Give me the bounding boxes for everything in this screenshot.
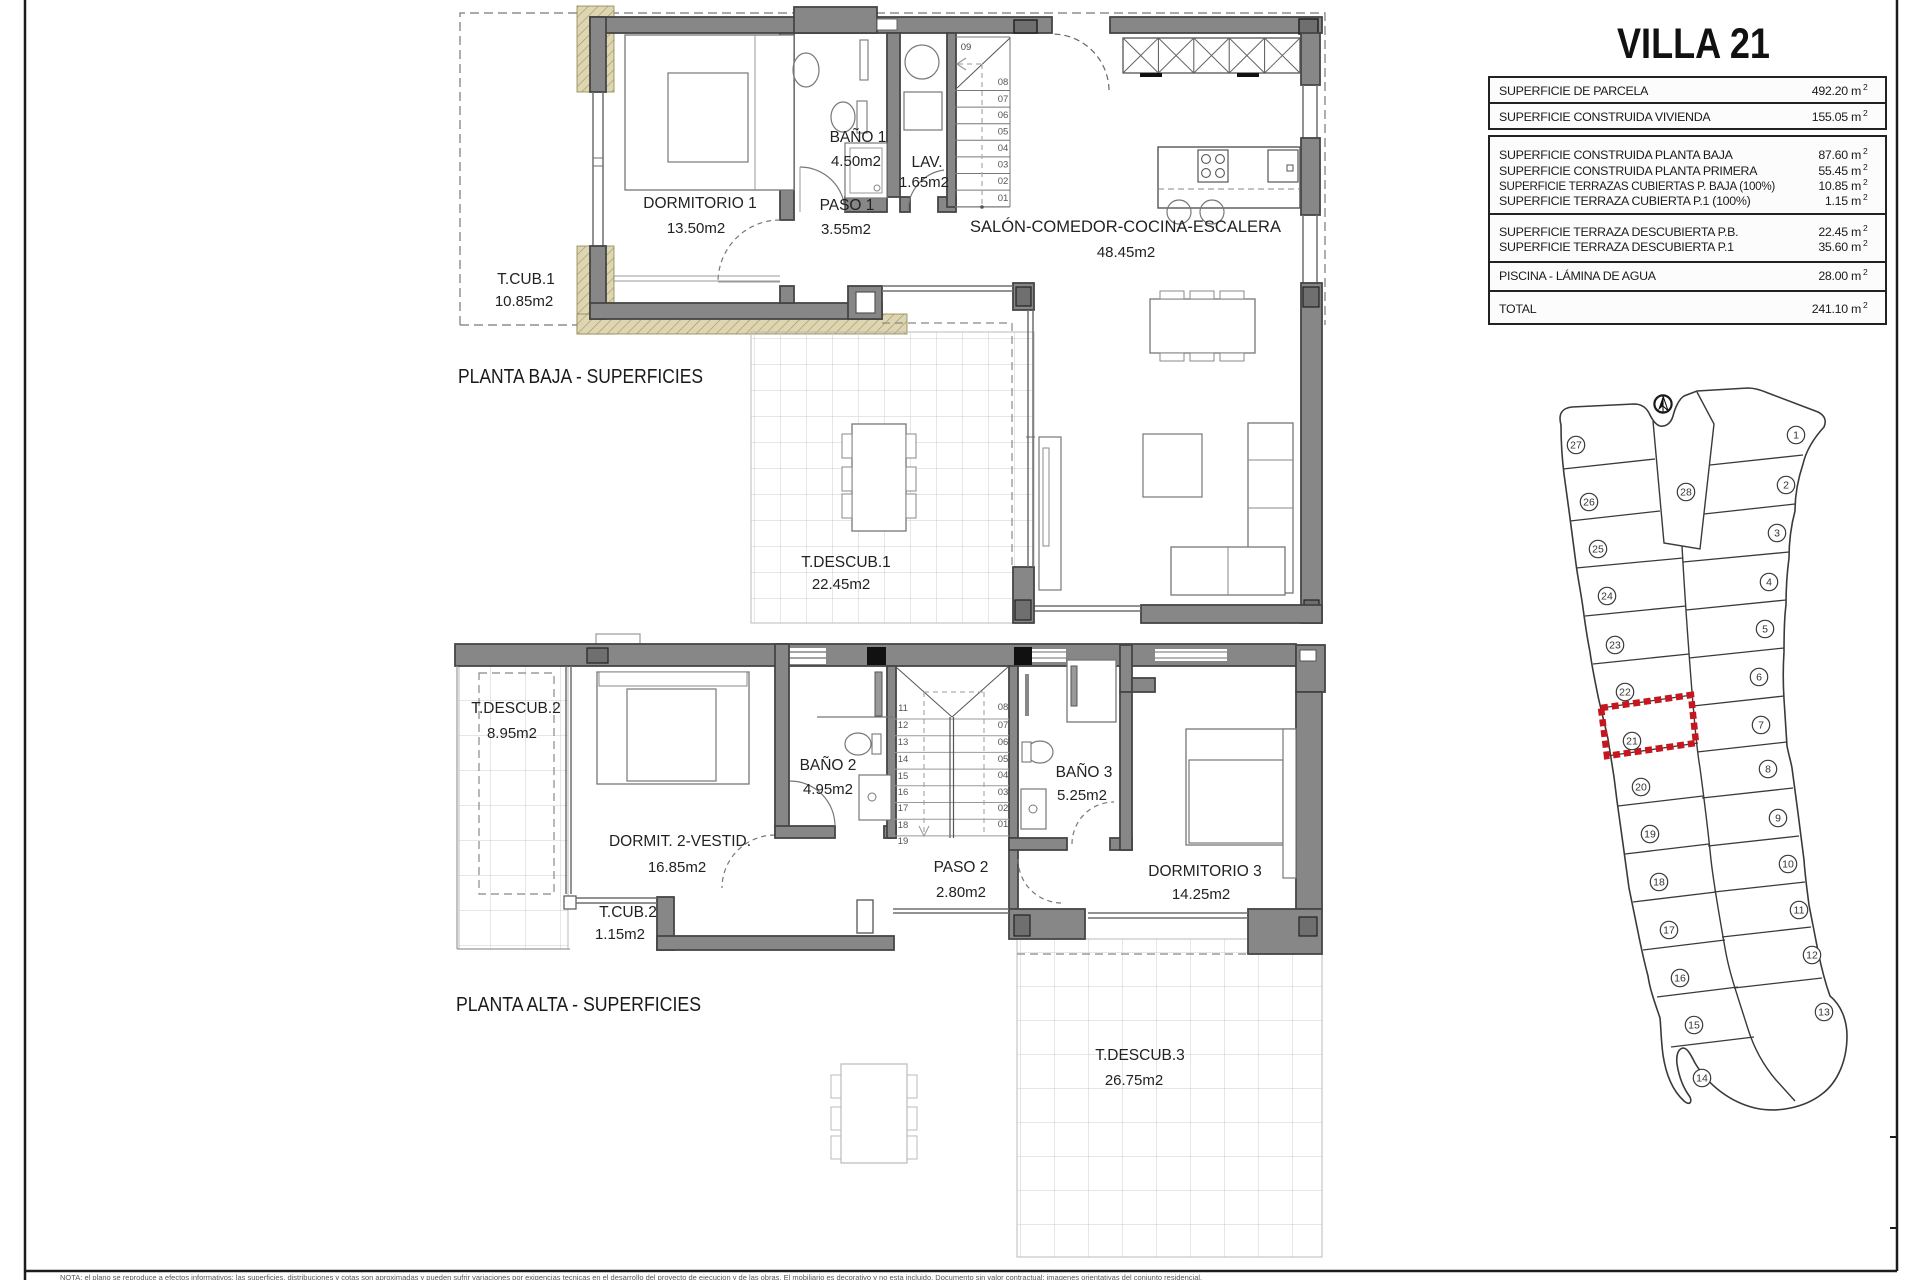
svg-text:18: 18: [1653, 877, 1665, 889]
svg-text:2: 2: [1863, 238, 1868, 248]
svg-text:14.25m2: 14.25m2: [1172, 886, 1230, 903]
svg-text:2: 2: [1863, 146, 1868, 156]
svg-text:SUPERFICIE TERRAZAS CUBIERTAS: SUPERFICIE TERRAZAS CUBIERTAS P. BAJA (1…: [1499, 179, 1775, 193]
svg-text:27: 27: [1570, 440, 1582, 452]
svg-text:DORMITORIO 1: DORMITORIO 1: [643, 195, 756, 212]
svg-text:T.DESCUB.3: T.DESCUB.3: [1095, 1047, 1185, 1064]
svg-text:SUPERFICIE CONSTRUIDA VIVIENDA: SUPERFICIE CONSTRUIDA VIVIENDA: [1499, 110, 1711, 124]
svg-text:2: 2: [1863, 162, 1868, 172]
svg-text:T.DESCUB.1: T.DESCUB.1: [801, 554, 891, 571]
svg-text:3: 3: [1774, 528, 1780, 540]
svg-text:2: 2: [1863, 192, 1868, 202]
svg-text:SUPERFICIE CONSTRUIDA PLANTA B: SUPERFICIE CONSTRUIDA PLANTA BAJA: [1499, 148, 1734, 162]
svg-text:SALÓN-COMEDOR-COCINA-ESCALERA: SALÓN-COMEDOR-COCINA-ESCALERA: [970, 217, 1282, 236]
svg-text:15: 15: [898, 771, 909, 782]
svg-text:241.10 m: 241.10 m: [1812, 302, 1861, 316]
svg-text:14: 14: [1696, 1073, 1708, 1085]
svg-text:19: 19: [1644, 829, 1656, 841]
svg-text:01: 01: [998, 193, 1009, 204]
svg-text:8: 8: [1765, 764, 1771, 776]
svg-text:17: 17: [1663, 925, 1675, 937]
svg-text:13.50m2: 13.50m2: [667, 220, 725, 237]
svg-text:T.CUB.2: T.CUB.2: [599, 904, 657, 921]
svg-text:20: 20: [1635, 782, 1647, 794]
svg-text:8.95m2: 8.95m2: [487, 725, 537, 742]
svg-text:2.80m2: 2.80m2: [936, 884, 986, 901]
svg-text:NOTA: el plano se reproduce a: NOTA: el plano se reproduce a efectos in…: [60, 1273, 1202, 1280]
svg-text:4: 4: [1766, 577, 1772, 589]
svg-text:05: 05: [998, 127, 1009, 138]
svg-text:SUPERFICIE TERRAZA CUBIERTA P.: SUPERFICIE TERRAZA CUBIERTA P.1 (100%): [1499, 194, 1751, 208]
svg-text:5: 5: [1762, 624, 1768, 636]
svg-text:07: 07: [998, 720, 1009, 731]
svg-text:18: 18: [898, 820, 909, 831]
svg-text:2: 2: [1863, 177, 1868, 187]
svg-text:28.00 m: 28.00 m: [1818, 269, 1861, 283]
svg-text:05: 05: [998, 754, 1009, 765]
svg-text:26.75m2: 26.75m2: [1105, 1072, 1163, 1089]
svg-text:2: 2: [1863, 223, 1868, 233]
svg-text:03: 03: [998, 160, 1009, 171]
svg-text:15: 15: [1688, 1020, 1700, 1032]
svg-text:DORMIT. 2-VESTID.: DORMIT. 2-VESTID.: [609, 833, 751, 850]
svg-text:SUPERFICIE DE PARCELA: SUPERFICIE DE PARCELA: [1499, 84, 1649, 98]
svg-text:10.85 m: 10.85 m: [1818, 179, 1861, 193]
svg-text:3.55m2: 3.55m2: [821, 221, 871, 238]
svg-text:22.45 m: 22.45 m: [1818, 225, 1861, 239]
svg-text:12: 12: [898, 720, 909, 731]
svg-text:06: 06: [998, 110, 1009, 121]
svg-text:2: 2: [1863, 267, 1868, 277]
svg-text:2: 2: [1863, 82, 1868, 92]
svg-text:07: 07: [998, 94, 1009, 105]
svg-text:BAÑO 2: BAÑO 2: [800, 757, 857, 774]
svg-text:T.CUB.1: T.CUB.1: [497, 271, 555, 288]
svg-text:LAV.: LAV.: [911, 154, 942, 171]
svg-text:25: 25: [1592, 544, 1604, 556]
svg-text:4.50m2: 4.50m2: [831, 153, 881, 170]
svg-text:PISCINA - LÁMINA DE AGUA: PISCINA - LÁMINA DE AGUA: [1499, 268, 1657, 283]
svg-text:01: 01: [998, 819, 1009, 830]
svg-text:T.DESCUB.2: T.DESCUB.2: [471, 700, 561, 717]
svg-text:1: 1: [1793, 430, 1799, 442]
svg-text:PLANTA BAJA - SUPERFICIES: PLANTA BAJA - SUPERFICIES: [458, 366, 703, 388]
svg-text:16: 16: [898, 787, 909, 798]
svg-text:10: 10: [1782, 859, 1794, 871]
svg-text:08: 08: [998, 702, 1009, 713]
svg-text:2: 2: [1863, 108, 1868, 118]
svg-text:PASO 1: PASO 1: [820, 197, 875, 214]
svg-text:48.45m2: 48.45m2: [1097, 244, 1155, 261]
svg-text:55.45 m: 55.45 m: [1818, 164, 1861, 178]
svg-text:22: 22: [1619, 687, 1631, 699]
svg-text:17: 17: [898, 803, 909, 814]
svg-text:02: 02: [998, 803, 1009, 814]
svg-text:87.60 m: 87.60 m: [1818, 148, 1861, 162]
svg-text:SUPERFICIE TERRAZA DESCUBIERTA: SUPERFICIE TERRAZA DESCUBIERTA P.1: [1499, 240, 1734, 254]
svg-text:TOTAL: TOTAL: [1499, 302, 1537, 316]
svg-text:2: 2: [1783, 480, 1789, 492]
svg-text:03: 03: [998, 787, 1009, 798]
svg-text:24: 24: [1601, 591, 1613, 603]
svg-text:2: 2: [1863, 300, 1868, 310]
svg-text:16: 16: [1674, 973, 1686, 985]
svg-text:492.20 m: 492.20 m: [1812, 84, 1861, 98]
svg-text:6: 6: [1756, 672, 1762, 684]
svg-text:SUPERFICIE TERRAZA DESCUBIERTA: SUPERFICIE TERRAZA DESCUBIERTA P.B.: [1499, 225, 1738, 239]
svg-text:10.85m2: 10.85m2: [495, 293, 553, 310]
svg-text:155.05 m: 155.05 m: [1812, 110, 1861, 124]
svg-text:1.15m2: 1.15m2: [595, 926, 645, 943]
svg-text:09: 09: [961, 42, 972, 53]
svg-text:13: 13: [1818, 1007, 1830, 1019]
svg-text:04: 04: [998, 143, 1009, 154]
svg-text:BAÑO 1: BAÑO 1: [830, 129, 887, 146]
svg-text:DORMITORIO 3: DORMITORIO 3: [1148, 863, 1261, 880]
svg-text:26: 26: [1583, 497, 1595, 509]
svg-text:13: 13: [898, 737, 909, 748]
svg-text:12: 12: [1806, 950, 1818, 962]
svg-text:PASO 2: PASO 2: [934, 859, 989, 876]
svg-text:1.15 m: 1.15 m: [1825, 194, 1861, 208]
svg-text:06: 06: [998, 737, 1009, 748]
svg-text:11: 11: [898, 703, 908, 714]
svg-text:02: 02: [998, 176, 1009, 187]
svg-text:1.65m2: 1.65m2: [899, 174, 949, 191]
svg-text:08: 08: [998, 77, 1009, 88]
svg-text:19: 19: [898, 836, 909, 847]
svg-text:28: 28: [1680, 487, 1692, 499]
svg-text:SUPERFICIE CONSTRUIDA PLANTA P: SUPERFICIE CONSTRUIDA PLANTA PRIMERA: [1499, 164, 1758, 178]
svg-text:16.85m2: 16.85m2: [648, 859, 706, 876]
svg-text:23: 23: [1609, 640, 1621, 652]
svg-text:5.25m2: 5.25m2: [1057, 787, 1107, 804]
svg-text:VILLA 21: VILLA 21: [1617, 20, 1770, 68]
svg-text:9: 9: [1775, 813, 1781, 825]
svg-text:PLANTA ALTA - SUPERFICIES: PLANTA ALTA - SUPERFICIES: [456, 994, 701, 1016]
svg-text:21: 21: [1626, 736, 1638, 748]
svg-text:04: 04: [998, 770, 1009, 781]
svg-text:7: 7: [1758, 720, 1764, 732]
svg-text:BAÑO 3: BAÑO 3: [1056, 764, 1113, 781]
svg-text:11: 11: [1794, 905, 1805, 917]
svg-text:35.60 m: 35.60 m: [1818, 240, 1861, 254]
svg-text:4.95m2: 4.95m2: [803, 781, 853, 798]
svg-text:14: 14: [898, 754, 909, 765]
svg-text:22.45m2: 22.45m2: [812, 576, 870, 593]
